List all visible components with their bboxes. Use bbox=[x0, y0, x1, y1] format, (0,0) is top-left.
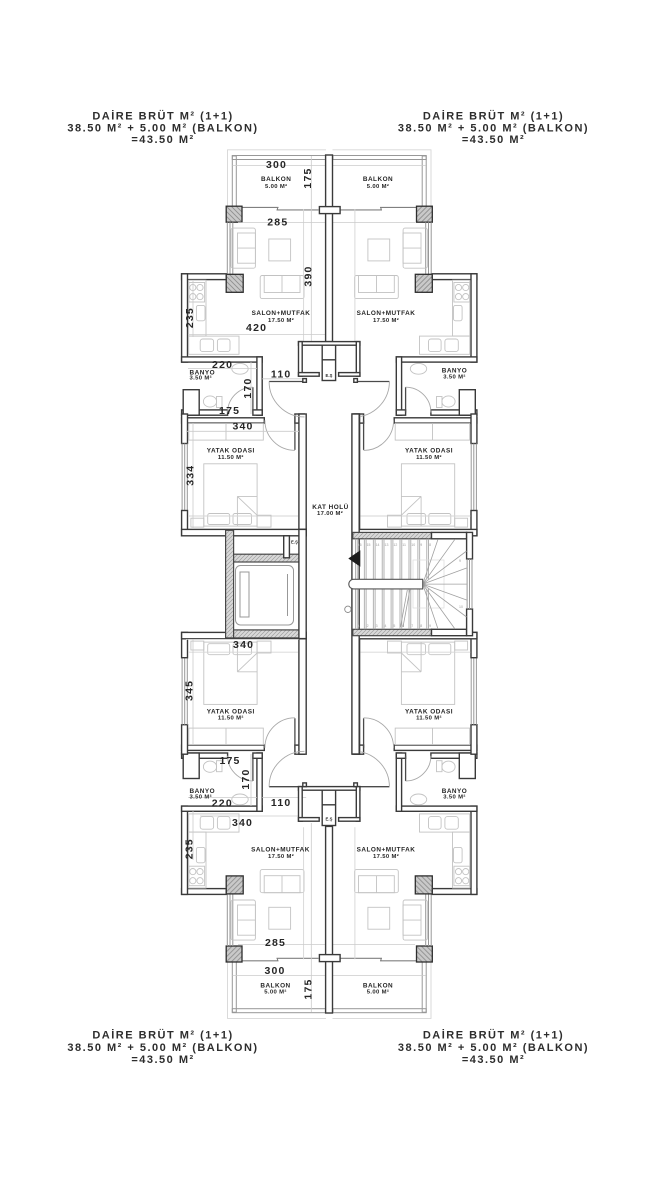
svg-text:YATAK ODASI: YATAK ODASI bbox=[207, 448, 255, 455]
svg-text:3.50 M²: 3.50 M² bbox=[190, 375, 212, 382]
svg-text:110: 110 bbox=[271, 369, 292, 381]
svg-text:8: 8 bbox=[429, 543, 431, 547]
svg-text:BALKON: BALKON bbox=[260, 983, 290, 990]
svg-text:3.50 M²: 3.50 M² bbox=[443, 373, 465, 380]
svg-text:16: 16 bbox=[358, 543, 362, 547]
svg-text:8: 8 bbox=[420, 624, 422, 628]
svg-text:38.50 M² + 5.00 M² (BALKON): 38.50 M² + 5.00 M² (BALKON) bbox=[398, 123, 589, 135]
svg-text:1: 1 bbox=[358, 624, 360, 628]
svg-text:17.00 M²: 17.00 M² bbox=[317, 510, 343, 517]
svg-text:BANYO: BANYO bbox=[442, 367, 468, 374]
svg-text:11.50 M²: 11.50 M² bbox=[218, 714, 244, 721]
svg-text:11: 11 bbox=[402, 543, 406, 547]
svg-text:14: 14 bbox=[376, 543, 380, 547]
svg-text:17.50 M²: 17.50 M² bbox=[373, 317, 399, 324]
svg-text:5.00 M²: 5.00 M² bbox=[264, 989, 286, 996]
svg-text:SALON+MUTFAK: SALON+MUTFAK bbox=[251, 847, 310, 854]
svg-text:390: 390 bbox=[302, 265, 314, 286]
svg-text:17.50 M²: 17.50 M² bbox=[268, 317, 294, 324]
svg-text:E.Ş: E.Ş bbox=[291, 540, 298, 545]
svg-text:4: 4 bbox=[385, 624, 387, 628]
svg-text:38.50 M² + 5.00 M² (BALKON): 38.50 M² + 5.00 M² (BALKON) bbox=[67, 1042, 258, 1054]
svg-text:DAİRE BRÜT M² (1+1): DAİRE BRÜT M² (1+1) bbox=[92, 110, 233, 123]
svg-text:11.50 M²: 11.50 M² bbox=[416, 714, 442, 721]
svg-text:285: 285 bbox=[267, 216, 288, 228]
svg-text:300: 300 bbox=[264, 965, 285, 977]
svg-text:110: 110 bbox=[271, 797, 292, 809]
svg-text:SALON+MUTFAK: SALON+MUTFAK bbox=[252, 310, 311, 317]
svg-text:6: 6 bbox=[402, 624, 404, 628]
svg-text:420: 420 bbox=[246, 322, 267, 334]
svg-text:E.Ş: E.Ş bbox=[325, 373, 332, 378]
svg-text:=43.50 M²: =43.50 M² bbox=[131, 134, 194, 146]
svg-text:BALKON: BALKON bbox=[363, 176, 393, 183]
svg-text:345: 345 bbox=[184, 680, 196, 701]
svg-text:3.50 M²: 3.50 M² bbox=[190, 793, 212, 800]
svg-text:5.00 M²: 5.00 M² bbox=[265, 183, 287, 190]
svg-text:340: 340 bbox=[232, 817, 253, 829]
svg-text:10: 10 bbox=[411, 543, 415, 547]
svg-text:3: 3 bbox=[376, 624, 378, 628]
svg-text:175: 175 bbox=[219, 755, 240, 767]
svg-text:DAİRE BRÜT M² (1+1): DAİRE BRÜT M² (1+1) bbox=[423, 1029, 564, 1042]
svg-text:5.00 M²: 5.00 M² bbox=[367, 989, 389, 996]
svg-text:285: 285 bbox=[265, 937, 286, 949]
svg-text:2: 2 bbox=[367, 624, 369, 628]
svg-text:175: 175 bbox=[219, 405, 240, 417]
svg-text:300: 300 bbox=[266, 159, 287, 171]
svg-text:9: 9 bbox=[459, 559, 461, 563]
svg-text:235: 235 bbox=[184, 307, 196, 328]
svg-text:340: 340 bbox=[232, 420, 253, 432]
svg-text:13: 13 bbox=[385, 543, 389, 547]
svg-text:235: 235 bbox=[184, 838, 196, 859]
svg-text:17.50 M²: 17.50 M² bbox=[373, 853, 399, 860]
svg-text:220: 220 bbox=[212, 798, 233, 810]
svg-text:SALON+MUTFAK: SALON+MUTFAK bbox=[357, 847, 416, 854]
svg-text:=43.50 M²: =43.50 M² bbox=[462, 134, 525, 146]
svg-text:YATAK ODASI: YATAK ODASI bbox=[405, 448, 453, 455]
svg-text:12: 12 bbox=[393, 543, 397, 547]
svg-text:7: 7 bbox=[411, 624, 413, 628]
svg-text:38.50 M² + 5.00 M² (BALKON): 38.50 M² + 5.00 M² (BALKON) bbox=[67, 123, 258, 135]
svg-text:10: 10 bbox=[459, 605, 463, 609]
svg-text:175: 175 bbox=[302, 167, 314, 188]
svg-text:=43.50 M²: =43.50 M² bbox=[462, 1054, 525, 1066]
svg-text:9: 9 bbox=[420, 543, 422, 547]
svg-text:220: 220 bbox=[212, 359, 233, 371]
svg-text:=43.50 M²: =43.50 M² bbox=[131, 1054, 194, 1066]
svg-text:11.50 M²: 11.50 M² bbox=[218, 454, 244, 461]
svg-text:17.50 M²: 17.50 M² bbox=[268, 853, 294, 860]
svg-text:9: 9 bbox=[429, 624, 431, 628]
svg-text:5.00 M²: 5.00 M² bbox=[367, 183, 389, 190]
svg-text:170: 170 bbox=[240, 768, 252, 789]
svg-text:BALKON: BALKON bbox=[363, 983, 393, 990]
svg-text:DAİRE BRÜT M² (1+1): DAİRE BRÜT M² (1+1) bbox=[92, 1029, 233, 1042]
svg-text:DAİRE BRÜT M² (1+1): DAİRE BRÜT M² (1+1) bbox=[423, 110, 564, 123]
svg-text:38.50 M² + 5.00 M² (BALKON): 38.50 M² + 5.00 M² (BALKON) bbox=[398, 1042, 589, 1054]
svg-text:5: 5 bbox=[393, 624, 395, 628]
svg-text:3.50 M²: 3.50 M² bbox=[443, 793, 465, 800]
svg-text:SALON+MUTFAK: SALON+MUTFAK bbox=[357, 310, 416, 317]
svg-text:334: 334 bbox=[184, 465, 196, 486]
svg-text:175: 175 bbox=[303, 978, 315, 999]
svg-text:340: 340 bbox=[233, 639, 254, 651]
svg-text:BALKON: BALKON bbox=[261, 176, 291, 183]
svg-text:E.Ş: E.Ş bbox=[325, 817, 332, 822]
svg-text:170: 170 bbox=[242, 377, 254, 398]
svg-text:11.50 M²: 11.50 M² bbox=[416, 454, 442, 461]
svg-text:15: 15 bbox=[367, 543, 371, 547]
